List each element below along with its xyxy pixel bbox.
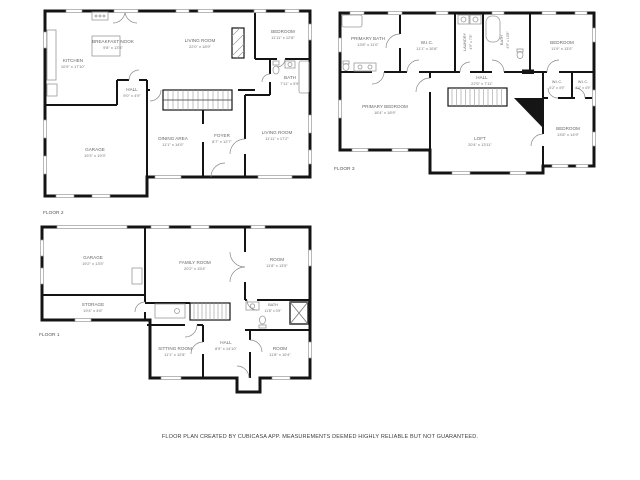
room-label-bedroom-f2: BEDROOM xyxy=(271,29,295,34)
room-label-hall-f1: HALL xyxy=(220,340,232,345)
floor-3-staircase xyxy=(448,88,507,106)
fireplace-chimney xyxy=(232,28,244,58)
room-label-primary-bedroom: PRIMARY BEDROOM xyxy=(362,104,408,109)
room-label-family-room: FAMILY ROOM xyxy=(179,260,211,265)
room-dims-bath-f1: 11'8" x 3'9" xyxy=(265,309,283,313)
room-dims-loft: 20'4" x 13'11" xyxy=(468,142,492,147)
room-dims-bath-f3: 4'9" x 10'8" xyxy=(506,31,510,49)
floor-1-plan: GARAGE 19'2" x 13'5" STORAGE 19'4" x 4'6… xyxy=(35,222,315,397)
room-label-wic-large: W.I.C. xyxy=(421,40,434,45)
room-label-hall-f3: HALL xyxy=(476,75,488,80)
room-dims-living-room-upper: 22'0" x 18'9" xyxy=(189,44,212,49)
room-label-living-room-lower: LIVING ROOM xyxy=(262,130,293,135)
room-label-living-room-upper: LIVING ROOM xyxy=(185,38,216,43)
room-label-primary-bath: PRIMARY BATH xyxy=(351,36,385,41)
room-dims-bedroom-f2: 11'11" x 12'8" xyxy=(271,35,295,40)
room-dims-garage-f1: 19'2" x 13'5" xyxy=(82,261,105,266)
floor-3-room-labels: PRIMARY BATH 13'8" x 11'0" W.I.C. 11'1" … xyxy=(351,31,591,147)
room-label-bath-f1: BATH xyxy=(268,303,278,307)
room-label-garage-f2: GARAGE xyxy=(85,147,105,152)
room-label-dining-area: DINING AREA xyxy=(158,136,189,141)
room-dims-wic-large: 11'1" x 10'8" xyxy=(416,46,438,51)
garage-door xyxy=(57,225,127,228)
room-dims-garage-f2: 19'3" x 19'3" xyxy=(84,153,107,158)
floor-2-label: FLOOR 2 xyxy=(43,210,64,216)
room-dims-wic-1: 6'2" x 4'9" xyxy=(549,86,565,90)
floor-3-plan: PRIMARY BATH 13'8" x 11'0" W.I.C. 11'1" … xyxy=(332,4,604,179)
floor-2-room-labels: KITCHEN 10'9" x 17'10" BREAKFAST NOOK 9'… xyxy=(61,29,300,158)
wall-chunk xyxy=(522,70,534,75)
room-dims-hall-f2: 9'0" x 4'9" xyxy=(123,93,141,98)
floor-3-label: FLOOR 3 xyxy=(334,166,355,172)
floor-1-fixtures xyxy=(132,268,308,328)
room-dims-primary-bedroom: 18'4" x 18'9" xyxy=(374,110,397,115)
room-label-bath-f3: BATH xyxy=(500,35,504,45)
room-dims-bedroom-f3-top: 11'9" x 13'0" xyxy=(551,46,573,51)
room-dims-family-room: 20'2" x 15'4" xyxy=(184,266,207,271)
room-dims-bath-f2: 7'11" x 5'9" xyxy=(280,81,300,86)
room-dims-primary-bath: 13'8" x 11'0" xyxy=(357,42,379,47)
disclaimer-text: FLOOR PLAN CREATED BY CUBICASA APP. MEAS… xyxy=(0,434,640,440)
room-label-bath-f2: BATH xyxy=(284,75,296,80)
room-label-garage-f1: GARAGE xyxy=(83,255,103,260)
room-label-bedroom-f3-top: BEDROOM xyxy=(550,40,574,45)
room-dims-room-upper: 11'8" x 13'5" xyxy=(266,263,288,268)
floor-2-plan: KITCHEN 10'9" x 17'10" BREAKFAST NOOK 9'… xyxy=(40,4,315,219)
room-dims-room-lower: 11'8" x 10'4" xyxy=(269,352,291,357)
floor-plan-sheet: KITCHEN 10'9" x 17'10" BREAKFAST NOOK 9'… xyxy=(0,0,640,480)
room-label-wic-1: W.I.C. xyxy=(552,80,562,84)
room-label-room-lower: ROOM xyxy=(273,346,287,351)
room-dims-hall-f1: 8'9" x 14'10" xyxy=(215,346,238,351)
room-dims-foyer: 8'7" x 12'7" xyxy=(212,139,232,144)
room-dims-sitting-room: 11'1" x 12'8" xyxy=(164,352,186,357)
room-label-hall-f2: HALL xyxy=(126,87,138,92)
room-label-room-upper: ROOM xyxy=(270,257,284,262)
room-dims-dining-area: 11'1" x 14'0" xyxy=(162,142,184,147)
floor-1-staircase xyxy=(190,303,230,320)
floor-2-kitchen-fixtures xyxy=(47,12,120,96)
room-label-kitchen: KITCHEN xyxy=(63,58,83,63)
room-label-foyer: FOYER xyxy=(214,133,231,138)
room-dims-storage: 19'4" x 4'6" xyxy=(83,308,103,313)
room-label-sitting-room: SITTING ROOM xyxy=(158,346,192,351)
room-dims-wic-2: 4'4" x 4'9" xyxy=(575,86,591,90)
floor-1-room-labels: GARAGE 19'2" x 13'5" STORAGE 19'4" x 4'6… xyxy=(82,255,292,357)
room-dims-living-room-lower: 11'11" x 17'2" xyxy=(265,136,289,141)
floor-1-label: FLOOR 1 xyxy=(39,332,60,338)
room-label-loft: LOFT xyxy=(474,136,486,141)
room-label-storage: STORAGE xyxy=(82,302,104,307)
room-label-bedroom-f3-bottom: BEDROOM xyxy=(556,126,580,131)
room-dims-hall-f3: 22'5" x 7'11" xyxy=(471,81,493,86)
room-label-wic-2: W.I.C. xyxy=(578,80,588,84)
room-dims-laundry: 4'9" x 7'8" xyxy=(469,34,473,50)
room-dims-bedroom-f3-bottom: 13'8" x 14'9" xyxy=(557,132,580,137)
room-dims-kitchen: 10'9" x 17'10" xyxy=(61,64,86,69)
floor-2-staircase xyxy=(163,90,232,110)
room-dims-breakfast-nook: 9'8" x 13'5" xyxy=(103,45,123,50)
angled-wall xyxy=(514,98,543,128)
room-label-laundry: LAUNDRY xyxy=(463,32,467,51)
room-label-breakfast-nook: BREAKFAST NOOK xyxy=(92,39,135,44)
